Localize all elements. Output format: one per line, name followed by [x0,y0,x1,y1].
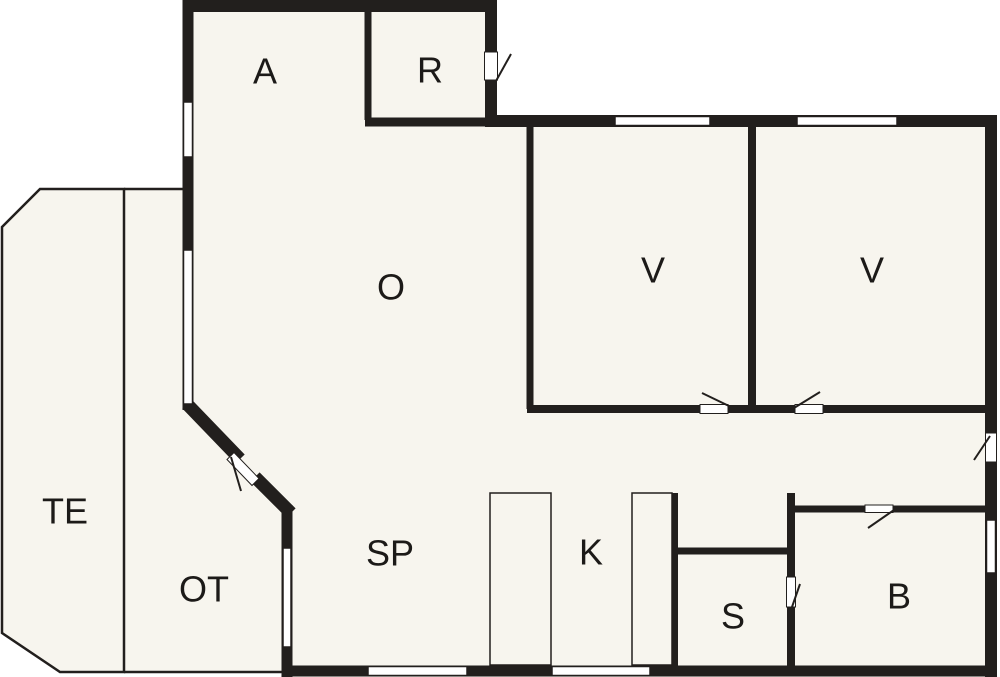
window-bottom-sp [368,667,467,676]
counter-right [632,493,672,665]
window-left-lower [184,250,193,404]
label-room-v1: V [641,250,665,291]
label-room-o: O [377,267,405,308]
label-room-r: R [417,50,443,91]
floor-plan: A R O V V TE OT SP K S B [0,0,1000,677]
label-room-b: B [887,576,911,617]
label-room-sp: SP [366,533,414,574]
counter-left [490,493,551,665]
label-room-k: K [579,532,603,573]
window-left-upper [184,102,193,157]
door-gap-b [865,505,893,513]
window-bottom-k [552,667,650,676]
terrace-te-floor [2,189,124,672]
window-top-v1 [615,117,710,126]
label-room-a: A [253,51,277,92]
label-room-te: TE [42,491,88,532]
window-right-b [987,520,996,573]
door-gap-entry-right [986,433,997,462]
door-gap-r [485,52,498,80]
door-gap-v1 [700,405,728,414]
house-floor [183,0,997,677]
label-room-s: S [721,596,745,637]
window-left-ot [283,548,291,647]
window-top-v2 [797,117,897,126]
label-room-ot: OT [179,569,229,610]
floor-plan-page: A R O V V TE OT SP K S B [0,0,1000,677]
label-room-v2: V [860,250,884,291]
door-swing-r [496,54,511,81]
